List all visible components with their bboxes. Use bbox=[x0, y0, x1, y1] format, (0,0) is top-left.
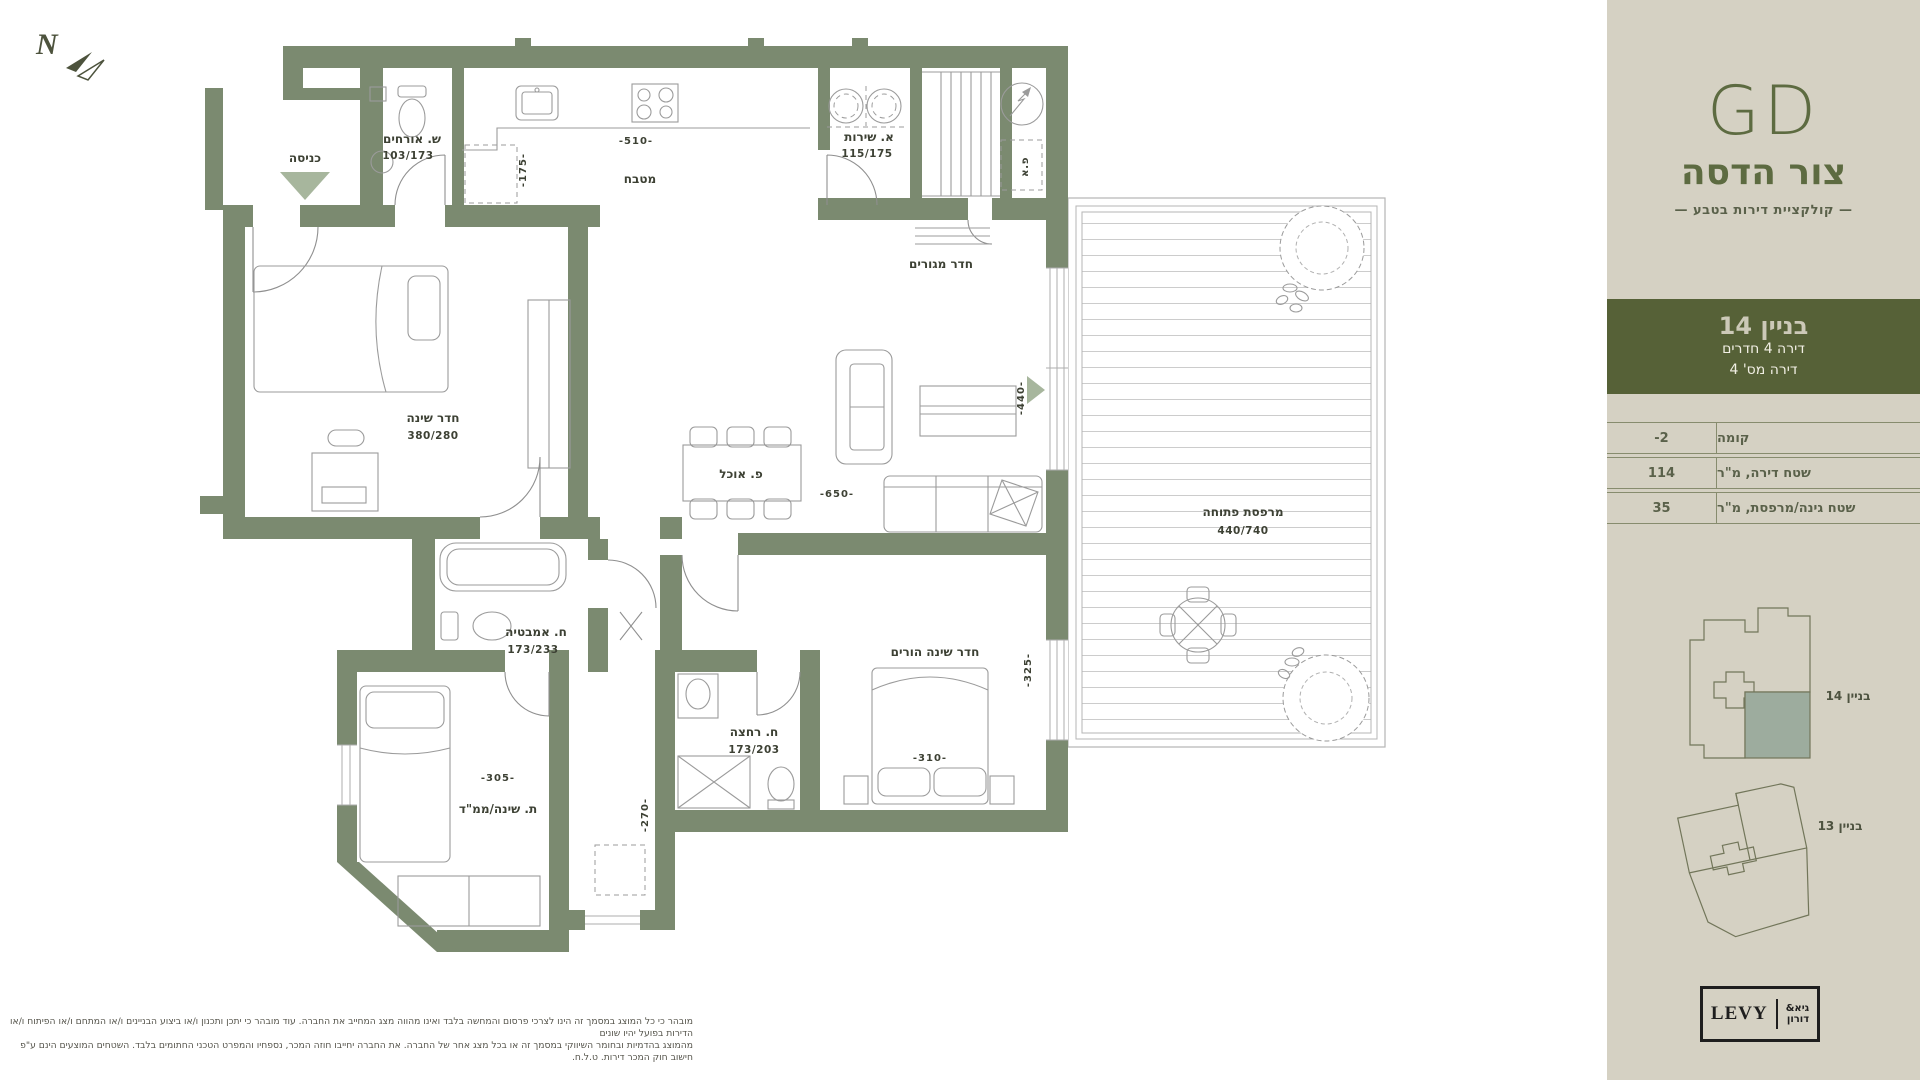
kitchen: -510- -175- מטבח bbox=[462, 84, 810, 203]
stair-core-icon bbox=[1709, 839, 1758, 877]
table-row: 114 שטח דירה, מ"ר bbox=[1607, 457, 1920, 489]
building-13-outline bbox=[1675, 781, 1821, 943]
garden-area-label: שטח גינה/מרפסת, מ"ר bbox=[1717, 493, 1920, 523]
building-14-label: בניין 14 bbox=[1826, 689, 1871, 703]
disclaimer-line-1: מובהר כי כל המוצג במסמך זה הינו לצרכי פר… bbox=[8, 1016, 693, 1040]
fridge-icon bbox=[465, 145, 517, 203]
bath-dims: 173/233 bbox=[507, 644, 558, 656]
logo-tagline: — קולקציית דירות בטבע — bbox=[1607, 203, 1920, 218]
saferoom-window-dim: -270- bbox=[640, 798, 651, 832]
nightstand-icon bbox=[990, 776, 1014, 804]
chair-icon bbox=[328, 430, 364, 446]
saferoom-width-dim: -305- bbox=[481, 773, 515, 784]
dining-label: פ. אוכל bbox=[719, 467, 763, 481]
table-row: -2 קומה bbox=[1607, 422, 1920, 454]
sidebar: GD צור הדסה — קולקציית דירות בטבע — בניי… bbox=[1607, 0, 1920, 1080]
bathroom: ח. אמבטיה 173/233 bbox=[440, 543, 656, 656]
bedroom: חדר שינה 380/280 bbox=[254, 266, 570, 517]
parents-window-dim: -325- bbox=[1023, 653, 1034, 687]
kitchen-width-dim: -510- bbox=[619, 136, 653, 147]
service-room: א. שירות 115/175 bbox=[827, 86, 908, 205]
building-title: בניין 14 bbox=[1719, 313, 1809, 339]
spec-table: -2 קומה 114 שטח דירה, מ"ר 35 שטח גינה/מר… bbox=[1607, 422, 1920, 527]
living-width-dim: -650- bbox=[820, 489, 854, 500]
pillow-icon bbox=[366, 692, 444, 728]
bathtub-icon bbox=[440, 543, 566, 591]
shower-label: ח. רחצה bbox=[730, 725, 779, 739]
brand-logo: GD צור הדסה — קולקציית דירות בטבע — bbox=[1607, 0, 1920, 218]
guest-wc-label: ש. אורחים bbox=[383, 132, 441, 146]
partner-line-2: דורון bbox=[1787, 1014, 1809, 1025]
nightstand-icon bbox=[844, 776, 868, 804]
fridge-dim: -175- bbox=[518, 153, 529, 187]
kitchen-label: מטבח bbox=[624, 172, 656, 186]
site-plan: בניין 14 בניין 13 bbox=[1600, 560, 1920, 980]
floor-value: -2 bbox=[1607, 423, 1717, 453]
north-compass: N bbox=[28, 16, 118, 86]
logo-project-name: צור הדסה bbox=[1607, 152, 1920, 193]
floorplan-sheet: מרפסת פתוחה 440/740 bbox=[0, 0, 1920, 1080]
parents-bedroom: חדר שינה הורים -310- -325- bbox=[844, 645, 1034, 804]
levy-wordmark: LEVY bbox=[1711, 1003, 1768, 1025]
balcony-door-arrow-icon bbox=[1027, 376, 1045, 404]
unit-rooms: דירה 4 חדרים bbox=[1722, 339, 1805, 359]
balcony-dims: 440/740 bbox=[1217, 525, 1268, 537]
elec-label: פ.א bbox=[1019, 157, 1031, 177]
bedroom-label: חדר שינה bbox=[406, 411, 459, 425]
bedroom-dims: 380/280 bbox=[407, 430, 458, 442]
floor-label: קומה bbox=[1717, 423, 1920, 453]
disclaimer-line-2: מהמוצג בהדמיות ובחומר השיווקי במסמך זה א… bbox=[8, 1040, 693, 1064]
compass-letter: N bbox=[35, 28, 59, 61]
bed-icon bbox=[360, 686, 450, 862]
entrance-arrow-icon bbox=[280, 172, 330, 200]
partner-names: גיא& דורון bbox=[1786, 1003, 1809, 1026]
floor-plan: מרפסת פתוחה 440/740 bbox=[0, 0, 1607, 1080]
living-label: חדר מגורים bbox=[909, 257, 973, 271]
dining-area: פ. אוכל bbox=[683, 427, 801, 519]
apartment-area-value: 114 bbox=[1607, 458, 1717, 488]
guest-wc-dims: 103/173 bbox=[382, 150, 433, 162]
legal-disclaimer: מובהר כי כל המוצג במסמך זה הינו לצרכי פר… bbox=[8, 1016, 693, 1065]
service-dims: 115/175 bbox=[841, 148, 892, 160]
logo-divider bbox=[1776, 999, 1778, 1029]
parents-width-dim: -310- bbox=[913, 753, 947, 764]
sink-icon bbox=[686, 679, 710, 709]
skylight-icon bbox=[595, 845, 645, 895]
unit-info-band: בניין 14 דירה 4 חדרים דירה מס' 4 bbox=[1607, 299, 1920, 394]
bath-label: ח. אמבטיה bbox=[505, 625, 567, 639]
logo-gd: GD bbox=[1607, 78, 1920, 146]
living-room: חדר מגורים -440- -650- bbox=[820, 257, 1045, 532]
tv-console-icon bbox=[920, 386, 1016, 436]
safe-room: -305- ת. שינה/ממ"ד -270- bbox=[360, 672, 651, 926]
apartment-area-label: שטח דירה, מ"ר bbox=[1717, 458, 1920, 488]
garden-area-value: 35 bbox=[1607, 493, 1717, 523]
living-door-dim: -440- bbox=[1016, 381, 1027, 415]
service-label: א. שירות bbox=[844, 130, 894, 144]
parents-label: חדר שינה הורים bbox=[891, 645, 980, 659]
pillow-icon bbox=[408, 276, 440, 340]
partner-line-1: גיא& bbox=[1786, 1003, 1809, 1014]
balcony: מרפסת פתוחה 440/740 bbox=[1068, 198, 1385, 747]
shower-dims: 173/203 bbox=[728, 744, 779, 756]
entrance-label: כניסה bbox=[289, 151, 321, 165]
building-13-label: בניין 13 bbox=[1818, 819, 1863, 833]
developer-logo: LEVY גיא& דורון bbox=[1607, 986, 1920, 1046]
pillow-icon bbox=[878, 768, 930, 796]
saferoom-label: ת. שינה/ממ"ד bbox=[459, 802, 537, 816]
pillow-icon bbox=[934, 768, 986, 796]
balcony-label: מרפסת פתוחה bbox=[1202, 505, 1283, 519]
highlighted-unit bbox=[1745, 692, 1810, 758]
unit-number: דירה מס' 4 bbox=[1729, 360, 1797, 380]
double-door-icon bbox=[620, 612, 642, 640]
shower-room: ח. רחצה 173/203 bbox=[678, 672, 800, 809]
table-row: 35 שטח גינה/מרפסת, מ"ר bbox=[1607, 492, 1920, 524]
toilet-icon bbox=[768, 767, 794, 801]
